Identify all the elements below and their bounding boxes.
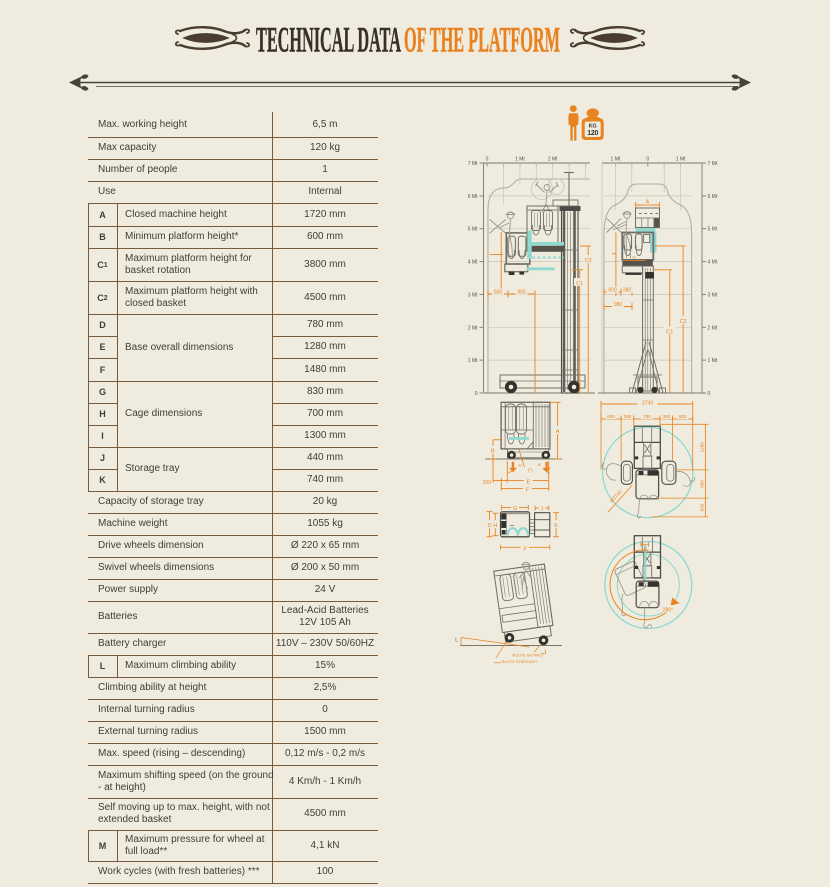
svg-text:1280: 1280	[699, 442, 704, 453]
svg-text:120: 120	[587, 130, 598, 137]
svg-text:2 Mt: 2 Mt	[708, 325, 718, 331]
svg-text:5 Mt: 5 Mt	[708, 227, 718, 233]
svg-text:0: 0	[646, 157, 649, 163]
svg-text:0: 0	[475, 391, 478, 397]
svg-text:7 Mt: 7 Mt	[708, 161, 718, 167]
svg-text:950: 950	[699, 480, 704, 488]
svg-text:RUOTE STERZANTI: RUOTE STERZANTI	[502, 660, 537, 664]
svg-text:3 Mt: 3 Mt	[468, 292, 478, 298]
svg-text:3 Mt: 3 Mt	[708, 292, 718, 298]
svg-text:TECHNICAL DATA: TECHNICAL DATA	[256, 20, 401, 60]
svg-text:B: B	[491, 449, 495, 455]
svg-text:900: 900	[517, 290, 526, 296]
svg-text:C2: C2	[585, 258, 592, 264]
svg-text:200: 200	[483, 480, 492, 486]
svg-text:C2: C2	[680, 319, 687, 325]
svg-text:M: M	[538, 462, 541, 467]
svg-text:2 Mt: 2 Mt	[548, 157, 558, 163]
svg-text:1 Mt: 1 Mt	[676, 157, 686, 163]
svg-text:780: 780	[643, 414, 651, 419]
svg-text:H: H	[493, 523, 497, 529]
svg-text:1 Mt: 1 Mt	[468, 358, 478, 364]
svg-text:6 Mt: 6 Mt	[708, 194, 718, 200]
svg-text:0: 0	[708, 391, 711, 397]
svg-text:2740: 2740	[642, 401, 653, 407]
svg-text:380: 380	[623, 288, 632, 294]
svg-text:RUOTE MOTRICI: RUOTE MOTRICI	[513, 653, 543, 657]
svg-text:4 Mt: 4 Mt	[468, 260, 478, 266]
svg-text::: :	[546, 522, 547, 527]
svg-text:600: 600	[679, 414, 687, 419]
svg-text:4 Mt: 4 Mt	[708, 260, 718, 266]
svg-text:0: 0	[486, 157, 489, 163]
svg-text:2 Mt: 2 Mt	[468, 325, 478, 331]
svg-text:(*): (*)	[528, 468, 533, 473]
svg-text:600: 600	[494, 290, 503, 296]
svg-text:5 Mt: 5 Mt	[468, 227, 478, 233]
svg-text:D: D	[488, 523, 492, 529]
svg-text:1 Mt: 1 Mt	[515, 157, 525, 163]
svg-text:G: G	[632, 255, 635, 260]
svg-text:OF THE PLATFORM: OF THE PLATFORM	[404, 20, 560, 60]
svg-text:1 Mt: 1 Mt	[611, 157, 621, 163]
svg-text:7 Mt: 7 Mt	[468, 161, 478, 167]
svg-text:380: 380	[624, 414, 632, 419]
svg-text:G: G	[513, 506, 517, 512]
svg-text:K: K	[554, 523, 558, 529]
svg-text:KG: KG	[589, 124, 597, 130]
svg-text:C1: C1	[666, 330, 673, 336]
svg-text:280°: 280°	[663, 607, 674, 613]
svg-text:C1: C1	[576, 281, 583, 287]
svg-text:980: 980	[614, 302, 623, 308]
svg-text:L: L	[455, 638, 458, 644]
svg-text:1 Mt: 1 Mt	[708, 358, 718, 364]
svg-text:650: 650	[699, 503, 704, 511]
svg-text:A: A	[646, 200, 650, 206]
svg-text:A: A	[556, 429, 560, 435]
svg-text:600: 600	[608, 288, 617, 294]
svg-text::: :	[646, 427, 647, 432]
svg-text:M: M	[519, 463, 522, 468]
svg-text:380: 380	[662, 414, 670, 419]
svg-text:J: J	[541, 507, 544, 513]
svg-text:6 Mt: 6 Mt	[468, 194, 478, 200]
svg-text:600: 600	[607, 414, 615, 419]
